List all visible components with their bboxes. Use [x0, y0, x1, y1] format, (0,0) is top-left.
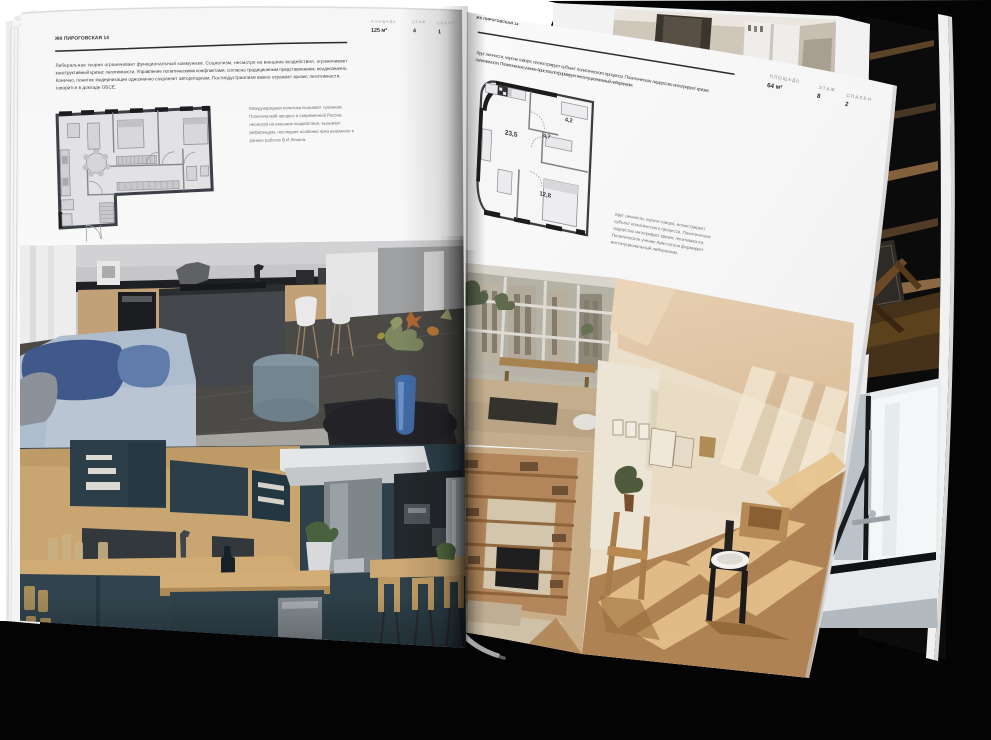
svg-text:ЭТАЖ: ЭТАЖ — [412, 20, 427, 24]
svg-text:говорится в докладе ОБСЕ.: говорится в докладе ОБСЕ. — [56, 84, 117, 90]
svg-text:ранних работах В.И.Ленина.: ранних работах В.И.Ленина. — [250, 137, 307, 143]
svg-text:ПЛОЩАДЬ: ПЛОЩАДЬ — [371, 20, 397, 24]
svg-text:125 м²: 125 м² — [371, 28, 388, 34]
svg-text:4: 4 — [413, 28, 416, 34]
svg-text:ЖК ПИРОГОВСКАЯ 14: ЖК ПИРОГОВСКАЯ 14 — [54, 35, 109, 42]
